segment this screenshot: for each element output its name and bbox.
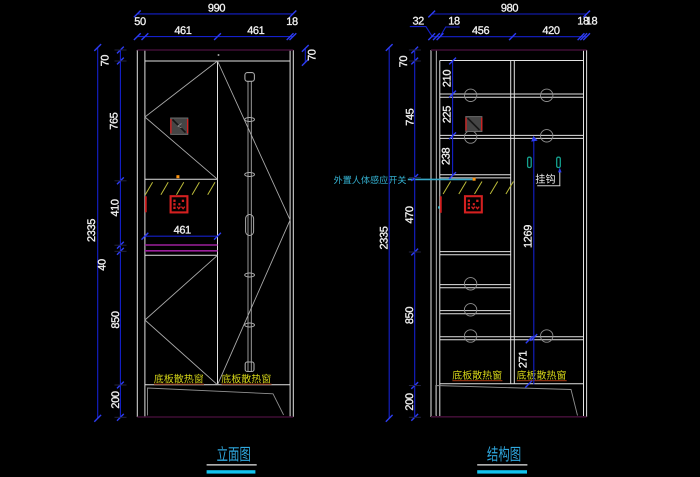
svg-text:461: 461 xyxy=(174,25,191,37)
svg-text:850: 850 xyxy=(110,311,122,328)
svg-text:850: 850 xyxy=(404,307,416,324)
svg-text:2335: 2335 xyxy=(379,226,391,249)
svg-text:32: 32 xyxy=(412,15,424,27)
svg-text:40: 40 xyxy=(97,259,109,271)
svg-text:420: 420 xyxy=(542,25,559,37)
svg-text:210: 210 xyxy=(441,70,453,87)
svg-text:410: 410 xyxy=(109,199,121,216)
svg-text:990: 990 xyxy=(208,3,225,15)
svg-text:18: 18 xyxy=(448,15,460,27)
svg-text:980: 980 xyxy=(501,3,518,15)
svg-text:200: 200 xyxy=(110,391,122,408)
svg-text:70: 70 xyxy=(306,49,318,61)
svg-text:271: 271 xyxy=(517,351,529,368)
svg-text:18: 18 xyxy=(286,16,298,28)
svg-text:70: 70 xyxy=(100,55,112,67)
svg-text:238: 238 xyxy=(441,148,453,165)
svg-text:461: 461 xyxy=(174,225,191,237)
svg-text:225: 225 xyxy=(441,106,453,123)
svg-text:70: 70 xyxy=(398,56,410,68)
svg-text:18: 18 xyxy=(586,15,598,27)
svg-text:1269: 1269 xyxy=(522,225,534,248)
svg-text:200: 200 xyxy=(404,393,416,410)
svg-text:470: 470 xyxy=(404,206,416,223)
svg-text:745: 745 xyxy=(405,108,417,125)
svg-text:456: 456 xyxy=(472,25,489,37)
svg-text:50: 50 xyxy=(134,16,146,28)
svg-text:765: 765 xyxy=(109,112,121,129)
svg-text:2335: 2335 xyxy=(86,219,98,242)
svg-text:461: 461 xyxy=(247,25,264,37)
